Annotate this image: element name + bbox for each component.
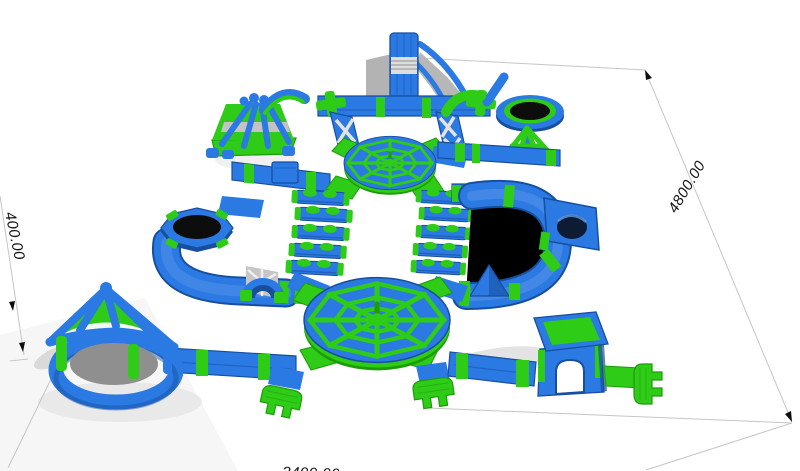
trampoline-mat — [510, 102, 550, 120]
cube-top-surface — [543, 317, 600, 345]
walkway-mound-to-web — [232, 162, 330, 192]
dome-post-right — [128, 344, 139, 379]
float-box — [272, 162, 298, 183]
web-platform-large — [287, 272, 468, 370]
left-trampoline-and-lane — [161, 196, 306, 304]
dimension-bottom-label: 3400.00 — [282, 464, 340, 471]
cube-arch-opening — [556, 360, 584, 394]
dome-post-left — [56, 336, 67, 371]
mound-foot-left — [206, 148, 219, 158]
octagon-mat — [173, 215, 221, 239]
float-log — [487, 77, 504, 102]
cube-tower — [534, 312, 662, 404]
climb-mound — [206, 93, 305, 159]
tower-ladder — [391, 57, 417, 74]
roller-rows-left — [285, 188, 353, 276]
render-canvas: 4800.00 400.00 3400.00 — [0, 0, 800, 471]
dome-hub — [100, 282, 112, 294]
dimension-right: 4800.00 — [645, 70, 792, 422]
right-loop — [459, 185, 599, 307]
dimension-left-label: 400.00 — [1, 210, 28, 261]
tunnel — [539, 198, 599, 251]
waterpark-dimension-drawing: 4800.00 400.00 3400.00 — [0, 0, 800, 471]
octagon-trampoline — [161, 208, 233, 252]
dome-interior-shadow — [70, 343, 158, 385]
mound-foot-right — [282, 146, 295, 156]
